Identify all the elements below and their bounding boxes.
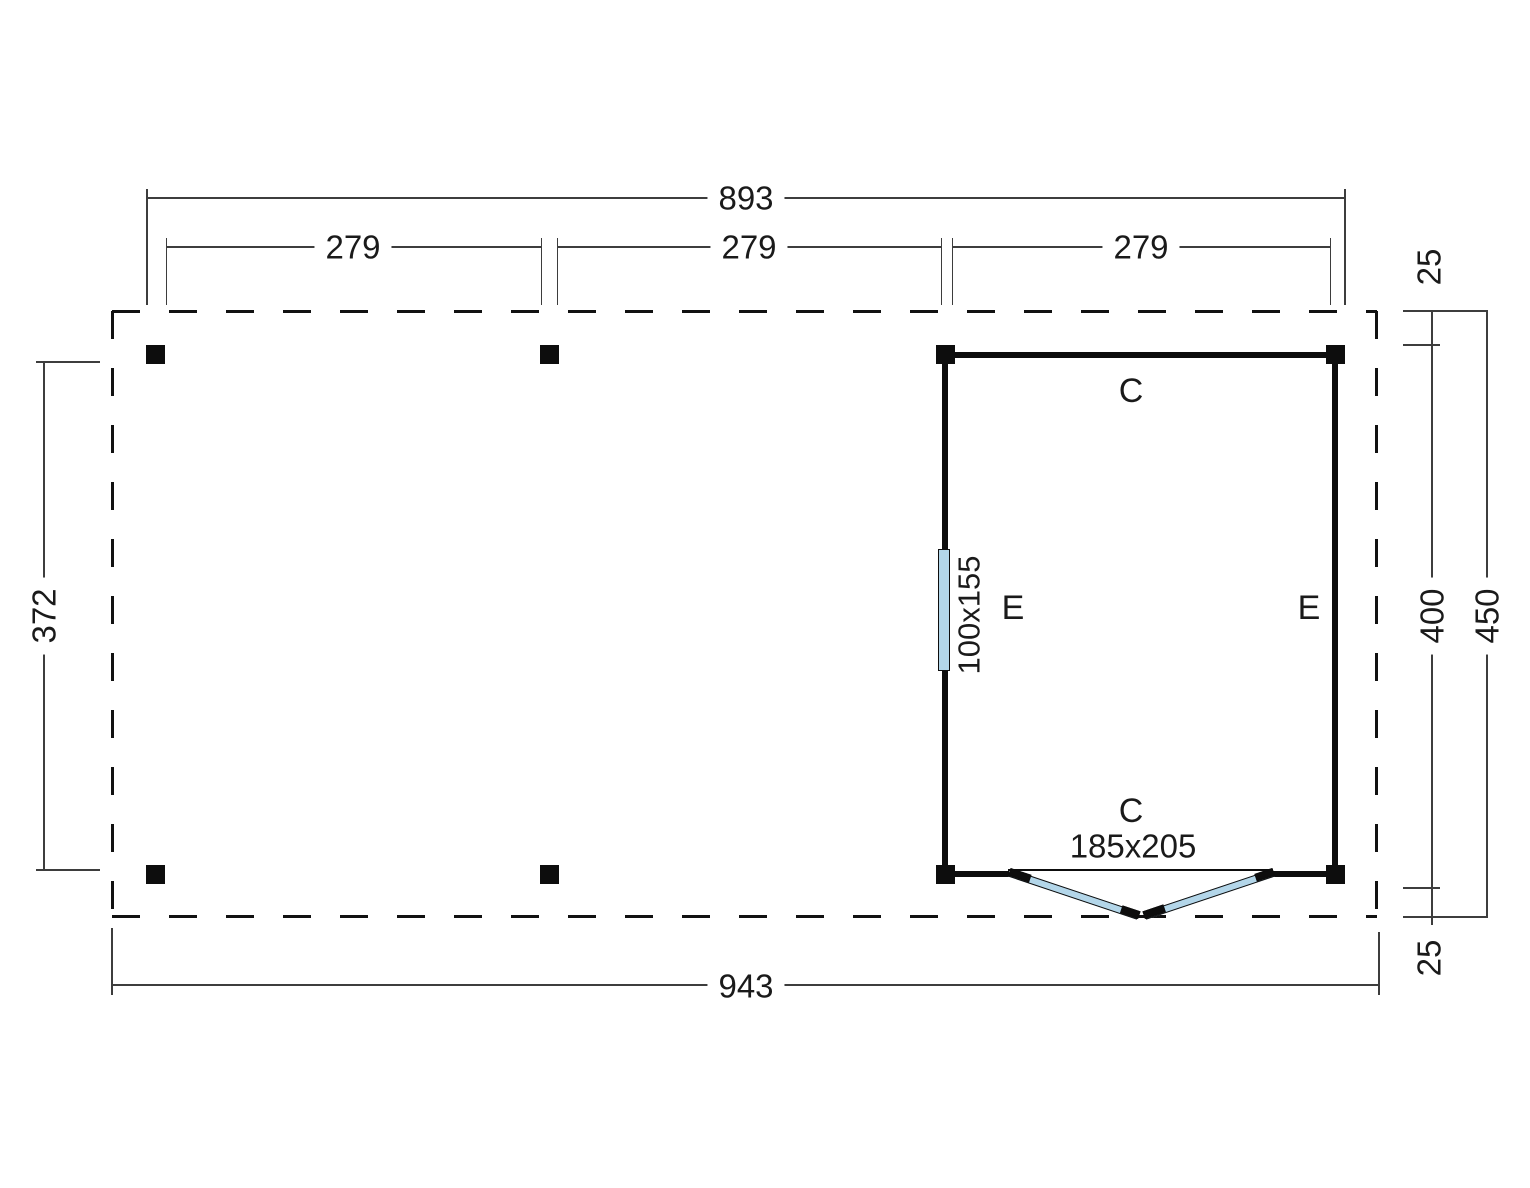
dim-tick	[1403, 344, 1440, 346]
dim-label-top-seg-2: 279	[710, 229, 787, 266]
roof-outline-left	[111, 311, 114, 917]
dim-label-top-seg-1: 279	[314, 229, 391, 266]
door-leaf-right	[1144, 869, 1275, 919]
dim-label-room-depth: 400	[1414, 577, 1451, 654]
door-leaf-left	[1009, 869, 1140, 919]
roof-outline-right	[1375, 311, 1378, 917]
roof-outline-bottom	[112, 915, 1377, 918]
post-top-left	[146, 345, 165, 364]
dim-ext	[146, 189, 148, 305]
room-wall-top	[942, 352, 1338, 358]
dim-ext	[166, 238, 168, 305]
room-label-right-wall: E	[1298, 591, 1321, 625]
door-size-label: 185x205	[1070, 830, 1197, 863]
dim-label-total-depth: 450	[1469, 577, 1506, 654]
post-top-middle	[540, 345, 559, 364]
room-label-door-wall: C	[1119, 794, 1144, 828]
post-bottom-left	[146, 865, 165, 884]
dim-ext	[941, 238, 943, 305]
dim-ext	[111, 928, 113, 995]
door-opening-line	[1008, 869, 1273, 871]
post-room-bottom-left	[936, 865, 955, 884]
dim-tick	[36, 869, 100, 871]
room-label-top-wall: C	[1119, 374, 1144, 408]
dim-tick	[1403, 310, 1488, 312]
floor-plan-canvas: 893 279 279 279 25 400 450 25 372 943 C …	[0, 0, 1530, 1188]
dim-label-post-span-left: 372	[26, 577, 63, 654]
dim-ext	[1330, 238, 1332, 305]
dim-tick	[1403, 887, 1440, 889]
dim-label-bottom-total: 943	[707, 968, 784, 1005]
post-room-top-left	[936, 345, 955, 364]
room-label-left-wall: E	[1002, 591, 1025, 625]
dim-label-top-total: 893	[707, 180, 784, 217]
dim-label-top-seg-3: 279	[1102, 229, 1179, 266]
dim-tick	[36, 361, 100, 363]
room-wall-right	[1332, 352, 1338, 877]
post-room-top-right	[1326, 345, 1345, 364]
dim-label-overhang-bottom: 25	[1411, 929, 1448, 988]
dim-label-overhang-top: 25	[1411, 238, 1448, 297]
dim-ext	[557, 238, 559, 305]
window-size-label: 100x155	[952, 548, 987, 683]
dim-tick	[1403, 916, 1488, 918]
dim-ext	[1378, 932, 1380, 995]
dim-ext	[1344, 189, 1346, 305]
window	[938, 549, 950, 671]
post-room-bottom-right	[1326, 865, 1345, 884]
dim-ext	[541, 238, 543, 305]
dim-ext	[952, 238, 954, 305]
door-hinge-stile	[1008, 868, 1031, 883]
post-bottom-middle	[540, 865, 559, 884]
roof-outline-top	[112, 310, 1377, 313]
